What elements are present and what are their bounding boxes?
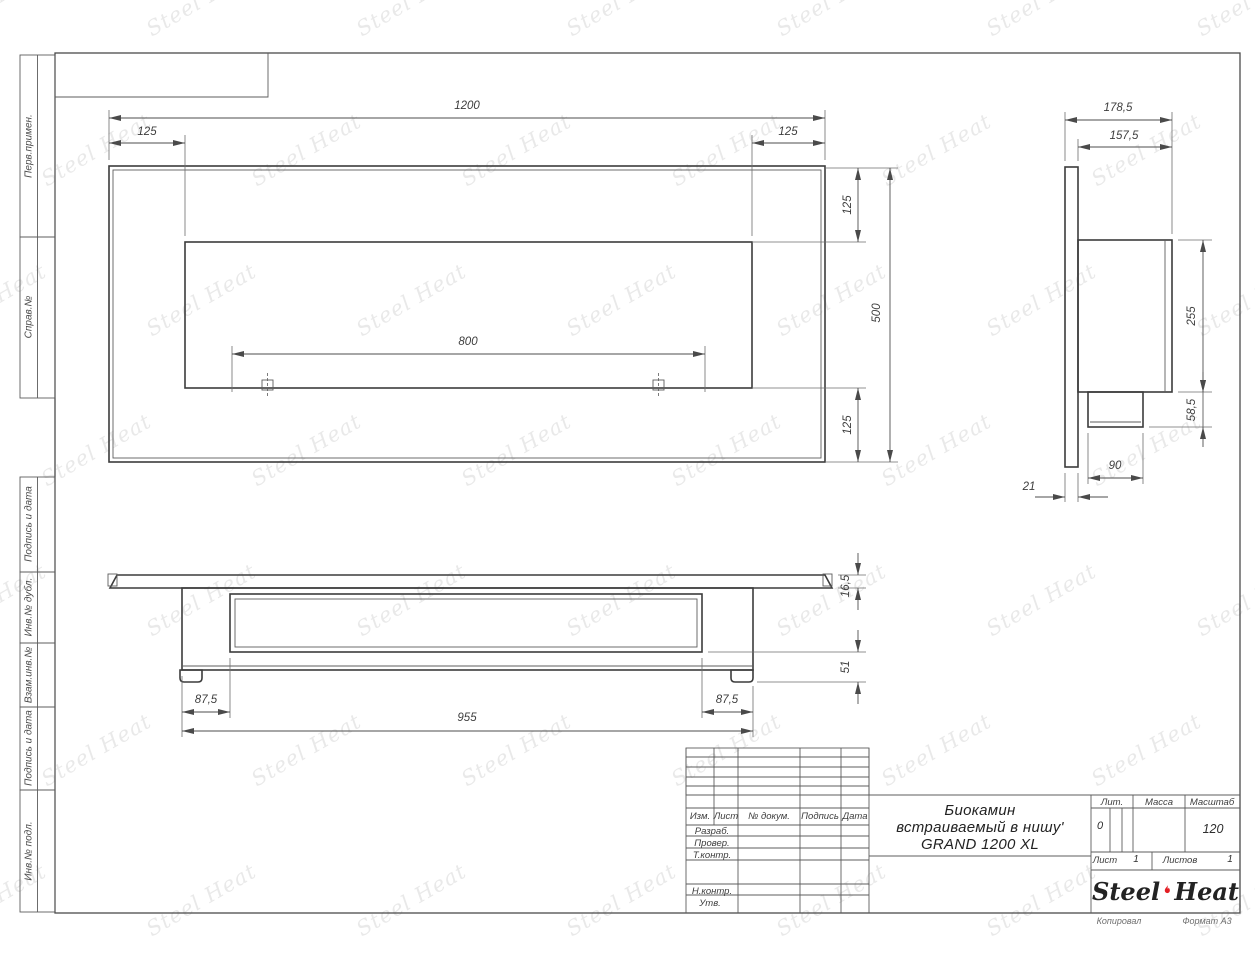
titleblock-col-doc: № докум.: [748, 811, 790, 822]
document-title-line1: Биокамин: [944, 802, 1015, 819]
titleblock-sheet-value: 1: [1133, 854, 1139, 865]
dim-top-left-margin: 87,5: [195, 694, 217, 706]
frame-label-perv-primen: Перв.примен.: [24, 114, 35, 178]
titleblock-col-list: Лист: [714, 811, 738, 822]
titleblock-scale-label: Масштаб: [1190, 797, 1234, 808]
dim-front-left-inset: 125: [137, 126, 156, 138]
dim-top-right-margin: 87,5: [716, 694, 738, 706]
titleblock-scale-value: 120: [1203, 822, 1224, 836]
dim-side-body-height: 255: [1186, 306, 1198, 325]
dim-front-overall-width: 1200: [454, 100, 480, 112]
frame-label-vzam-inv: Взам.инв.№: [24, 647, 35, 703]
dim-front-burner-length: 800: [458, 336, 477, 348]
titleblock-sheet-label: Лист: [1093, 855, 1117, 866]
frame-label-inv-dubl: Инв.№ дубл.: [24, 578, 35, 637]
dim-top-body-length: 955: [457, 712, 476, 724]
titleblock-mass-label: Масса: [1145, 797, 1173, 808]
dim-front-top-inset: 125: [842, 195, 854, 214]
titleblock-sheets-label: Листов: [1163, 855, 1198, 866]
logo-text-heat: Heat: [1174, 877, 1239, 906]
frame-label-inv-podl: Инв.№ подл.: [24, 821, 35, 880]
document-title-line3: GRAND 1200 XL: [921, 836, 1039, 853]
dim-top-body-height: 51: [840, 661, 852, 674]
titleblock-row-developed: Разраб.: [695, 826, 729, 837]
dim-front-bottom-inset: 125: [842, 415, 854, 434]
dim-side-tray-depth: 90: [1109, 460, 1122, 472]
dim-side-tray-height: 58,5: [1186, 399, 1198, 421]
titleblock-lit-value: 0: [1097, 820, 1103, 832]
titleblock-col-date: Дата: [842, 811, 867, 822]
frame-label-sprav-no: Справ.№: [24, 296, 35, 339]
titleblock-col-sign: Подпись: [801, 811, 839, 822]
titleblock-row-checked: Провер.: [694, 838, 729, 849]
copied-note: Копировал: [1097, 916, 1142, 926]
titleblock-sheets-value: 1: [1227, 854, 1233, 865]
titleblock-row-tcontrol: Т.контр.: [693, 850, 731, 861]
format-note: Формат А3: [1182, 916, 1231, 926]
titleblock-lit-label: Лит.: [1101, 797, 1123, 808]
dim-front-right-inset: 125: [778, 126, 797, 138]
titleblock-row-approved: Утв.: [699, 898, 721, 909]
titleblock-col-izm: Изм.: [690, 811, 710, 822]
flame-icon: [1163, 877, 1171, 903]
dim-side-flange-thickness: 21: [1023, 481, 1036, 493]
dim-side-total-depth: 178,5: [1104, 102, 1133, 114]
dim-side-body-depth: 157,5: [1110, 130, 1139, 142]
logo-text-steel: Steel: [1092, 877, 1160, 906]
titleblock-row-ncontrol: Н.контр.: [692, 886, 732, 897]
steelheat-logo: Steel Heat: [1092, 871, 1239, 912]
frame-label-podpis-data-2: Подпись и дата: [24, 710, 35, 786]
dim-front-overall-height: 500: [871, 303, 883, 322]
dim-top-flange-thickness: 16,5: [840, 575, 852, 597]
document-title-line2: встраиваемый в нишу': [896, 819, 1064, 836]
frame-label-podpis-data-1: Подпись и дата: [24, 486, 35, 562]
